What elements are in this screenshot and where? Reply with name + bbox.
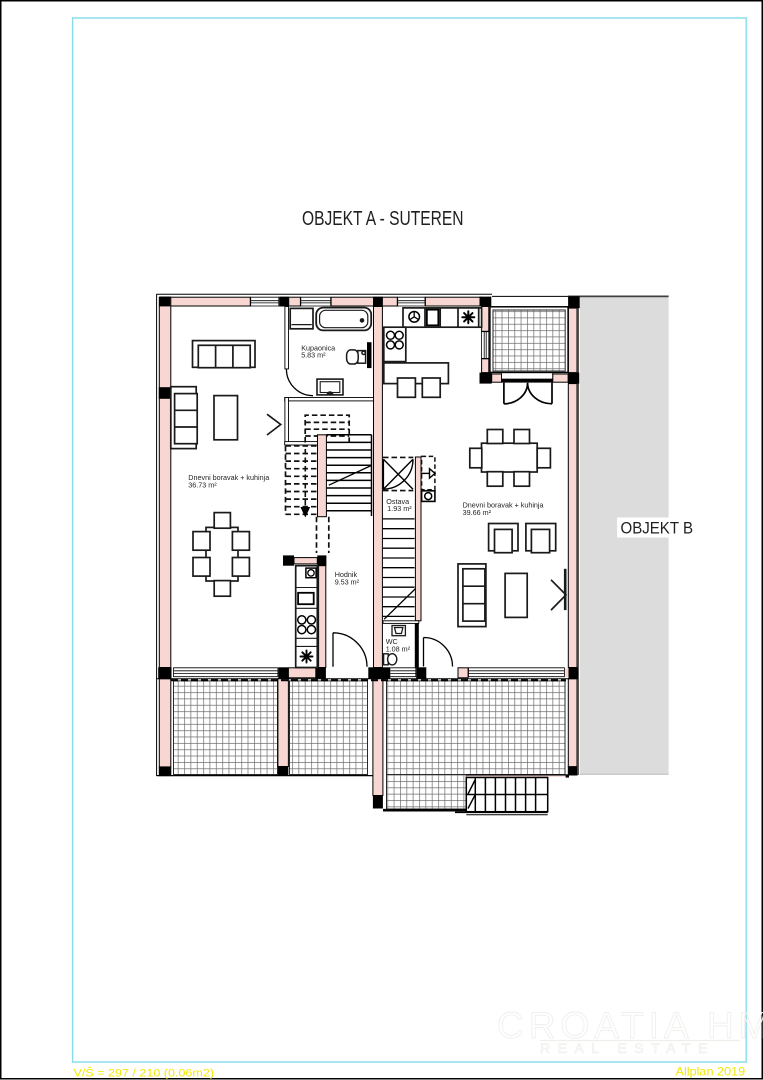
svg-text:OBJEKT B: OBJEKT B — [621, 519, 694, 537]
svg-text:OBJEKT A - SUTEREN: OBJEKT A - SUTEREN — [302, 208, 464, 230]
svg-text:39.66 m²: 39.66 m² — [463, 508, 492, 517]
svg-text:V/Š = 297 / 210 (0.06m2): V/Š = 297 / 210 (0.06m2) — [74, 1066, 215, 1079]
svg-text:1.93 m²: 1.93 m² — [387, 504, 412, 513]
svg-text:Allplan 2019: Allplan 2019 — [676, 1065, 746, 1079]
svg-text:9.53 m²: 9.53 m² — [335, 578, 360, 587]
svg-text:36.73 m²: 36.73 m² — [188, 480, 217, 489]
svg-text:1.08 m²: 1.08 m² — [386, 644, 411, 653]
svg-text:REAL ESTATE: REAL ESTATE — [540, 1040, 715, 1056]
svg-text:5.83 m²: 5.83 m² — [301, 351, 326, 360]
